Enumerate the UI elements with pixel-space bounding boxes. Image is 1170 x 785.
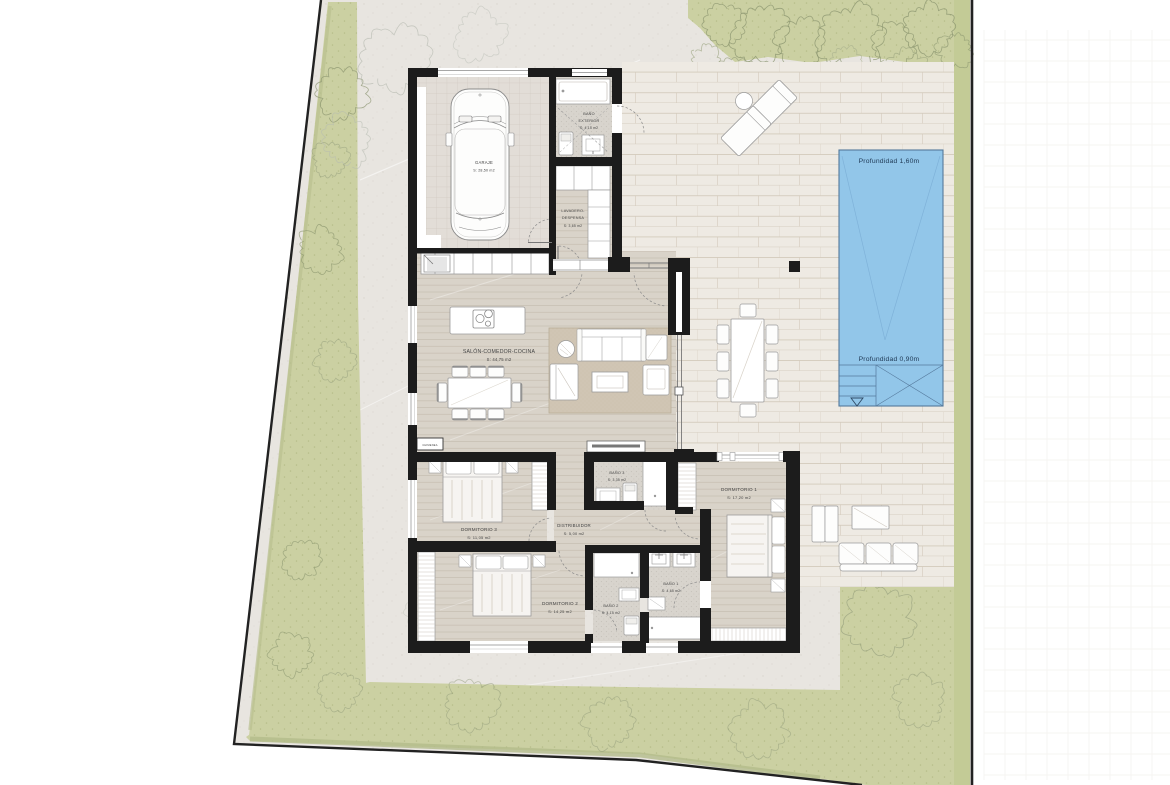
svg-text:S: 44,75 m2: S: 44,75 m2 bbox=[487, 357, 512, 362]
svg-text:S: 28,50 m2: S: 28,50 m2 bbox=[473, 169, 495, 173]
svg-text:EXTERIOR: EXTERIOR bbox=[578, 119, 599, 123]
svg-text:BAÑO 1: BAÑO 1 bbox=[663, 581, 678, 586]
svg-text:DORMITORIO 3: DORMITORIO 3 bbox=[461, 527, 497, 532]
svg-text:DISTRIBUIDOR: DISTRIBUIDOR bbox=[557, 523, 591, 528]
svg-text:Profundidad 1,60m: Profundidad 1,60m bbox=[859, 158, 920, 165]
svg-text:BAÑO 3: BAÑO 3 bbox=[609, 470, 624, 475]
svg-text:SALÓN-COMEDOR-COCINA: SALÓN-COMEDOR-COCINA bbox=[463, 348, 536, 355]
svg-text:S: 4,15 m2: S: 4,15 m2 bbox=[602, 611, 620, 615]
svg-text:S: 4,65 m2: S: 4,65 m2 bbox=[662, 589, 680, 593]
svg-text:LAVADERO-: LAVADERO- bbox=[561, 209, 585, 213]
svg-text:S: 4,15 m2: S: 4,15 m2 bbox=[580, 126, 598, 130]
svg-text:S: 3,35 m2: S: 3,35 m2 bbox=[608, 478, 626, 482]
svg-text:DESPENSA: DESPENSA bbox=[562, 216, 585, 220]
svg-text:S: 14,25 m2: S: 14,25 m2 bbox=[548, 609, 572, 614]
svg-text:DORMITORIO 2: DORMITORIO 2 bbox=[542, 601, 578, 606]
svg-text:S: 11,05 m2: S: 11,05 m2 bbox=[467, 535, 491, 540]
svg-text:GARAJE: GARAJE bbox=[475, 160, 493, 165]
svg-text:BAÑO: BAÑO bbox=[583, 111, 595, 116]
svg-text:Profundidad 0,90m: Profundidad 0,90m bbox=[859, 356, 920, 363]
svg-text:S: 3,65 m2: S: 3,65 m2 bbox=[564, 224, 582, 228]
svg-text:CHIMENEA: CHIMENEA bbox=[422, 443, 437, 447]
svg-text:S: 5,00 m2: S: 5,00 m2 bbox=[564, 531, 585, 536]
svg-text:BAÑO 2: BAÑO 2 bbox=[603, 603, 618, 608]
svg-text:DORMITORIO 1: DORMITORIO 1 bbox=[721, 487, 757, 492]
svg-text:S: 17,20 m2: S: 17,20 m2 bbox=[727, 495, 751, 500]
